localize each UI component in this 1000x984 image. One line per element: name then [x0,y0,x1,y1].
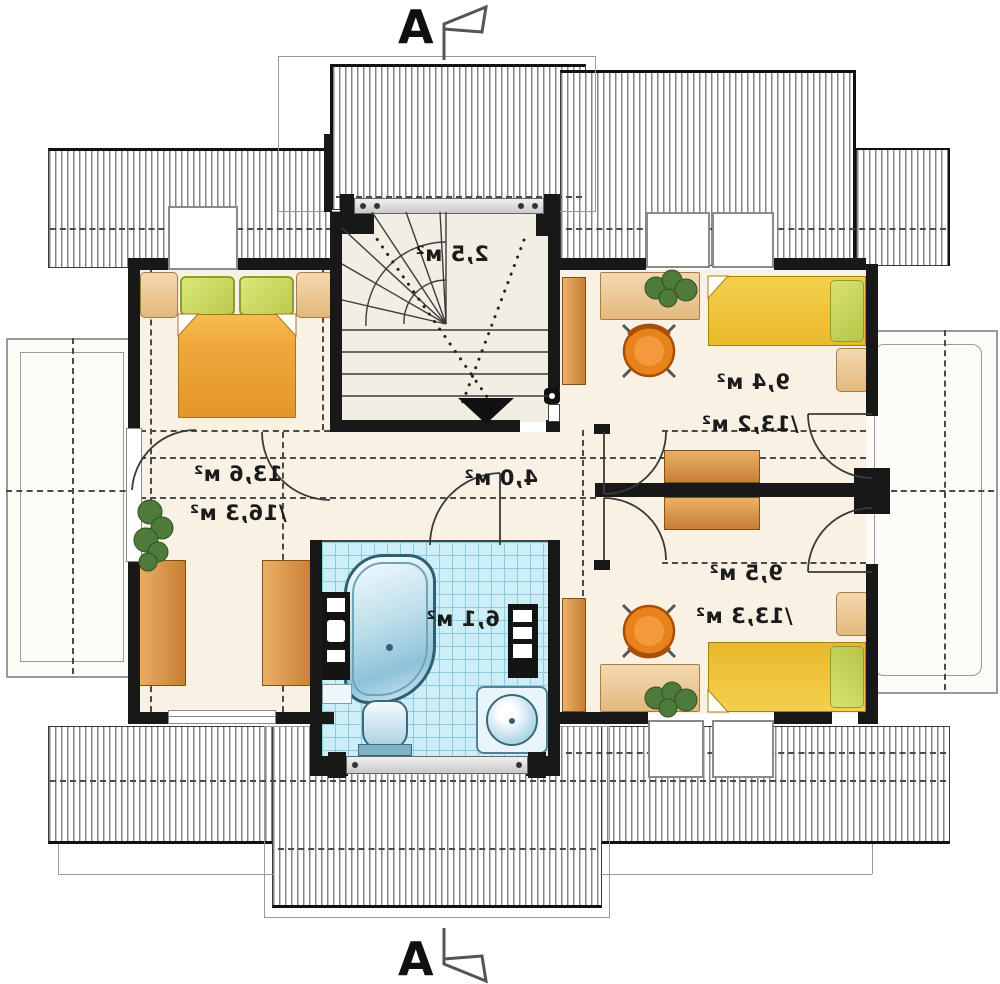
balcony-dashed-line [6,490,136,492]
dormer-window [712,212,774,268]
dormer-window [712,720,774,778]
wall [774,712,832,724]
bottom-window [168,710,276,724]
wall-partition [595,483,866,497]
dormer-window [168,206,238,270]
washing-machine-door [327,620,345,642]
window-screw [360,203,366,209]
wall [858,712,878,724]
double-sided-wardrobe [664,497,760,530]
window-jamb [328,752,346,778]
wardrobe [562,277,586,385]
headroom-dashed-line [130,497,596,499]
room-label-left-bedroom-total: /16,3 м² [189,501,286,525]
balcony-right-inner [874,344,982,676]
dormer-window [646,212,710,268]
wall [866,564,878,724]
eaves-outline [58,874,274,875]
wall [128,712,168,724]
section-marker-bottom: A [398,932,434,984]
wall [548,212,560,390]
cabinet-slot [513,610,532,622]
wall [560,712,648,724]
wall [128,562,140,714]
wardrobe [136,560,186,686]
nightstand [836,348,870,392]
bathtub-inner [352,562,428,696]
toilet-tank [358,744,412,756]
room-label-right-bedroom-2: 9,5 м² [709,561,783,585]
section-marker-top: A [398,0,434,54]
pillow [239,276,294,316]
eaves-outline [58,844,59,874]
bathtub-drain [386,644,393,651]
wall [128,268,140,430]
window-screw [516,762,522,768]
double-sided-wardrobe [664,450,760,483]
eaves-dashed-line [50,780,946,782]
side-window [126,428,142,562]
section-flag-bottom-icon [436,926,498,984]
bottom-window-mullion [168,716,276,717]
wall [548,540,560,776]
window-screw [352,762,358,768]
washing-machine-slot [327,598,345,612]
wall [560,258,646,270]
balcony-dashed-line [72,338,74,674]
door-hinge-stub [594,424,610,434]
balcony-dashed-line [944,330,946,690]
window-jamb [544,194,560,216]
door-leaf [548,404,560,422]
room-label-right-bedroom-1: 9,4 м² [716,370,790,394]
cabinet-slot [513,644,532,658]
wall-stub [324,134,332,212]
window-jamb [340,194,354,216]
window-screw [374,203,380,209]
stair-window [354,198,544,214]
door-handle-dot [549,393,555,399]
bathroom-window [346,756,528,774]
sink-drain [509,718,515,724]
wall [310,540,322,776]
window-jamb [528,752,546,778]
section-flag-top-icon [436,2,498,62]
door-hinge-stub [594,560,610,570]
wall [238,258,334,270]
eaves-outline [600,874,872,875]
room-label-hall: 4,0 м² [464,466,538,490]
dormer-window [648,720,704,778]
pillow [830,280,864,342]
wall [330,212,342,432]
wall [274,712,334,724]
double-bed [178,314,296,418]
wall [774,258,866,270]
window-screw [532,203,538,209]
room-boundary-dashed [140,430,330,432]
pillow [830,646,864,708]
roof-slope-top-right-step [856,148,950,266]
wall [330,420,520,432]
bath-counter [322,684,352,704]
eaves-outline [872,844,873,874]
room-label-right-bedroom-1-total: /13,2 м² [701,412,798,436]
attic-floor-plan: 2,5 м² 13,6 м² /16,3 м² 4,0 м² 6,1 м² 9,… [0,0,1000,984]
room-label-right-bedroom-2-total: /13,3 м² [695,604,792,628]
nightstand [296,272,334,318]
room-label-stairs: 2,5 м² [415,242,489,266]
wall-jamb [854,468,890,514]
desk [600,664,700,712]
desk [600,272,700,320]
room-label-left-bedroom: 13,6 м² [194,462,283,486]
nightstand [836,592,870,636]
toilet [362,700,408,750]
room-label-bathroom: 6,1 м² [426,607,500,631]
pillow [180,276,235,316]
cabinet-slot [513,627,532,639]
washing-machine-slot [327,650,345,662]
nightstand [140,272,178,318]
window-screw [518,203,524,209]
wardrobe [262,560,314,686]
wardrobe [562,598,586,712]
eaves-dashed-line [278,848,596,850]
wall [866,264,878,416]
